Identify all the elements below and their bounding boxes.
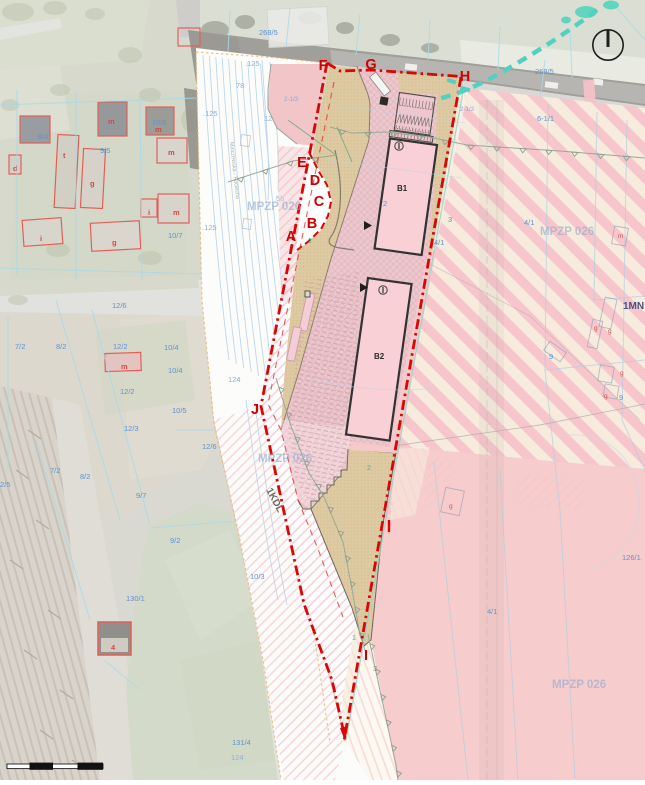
svg-text:B: B xyxy=(307,216,317,232)
svg-text:MPZP 026: MPZP 026 xyxy=(258,453,312,465)
svg-text:1MN: 1MN xyxy=(623,301,644,312)
svg-text:12/6: 12/6 xyxy=(202,442,217,451)
svg-text:.125: .125 xyxy=(202,223,217,232)
svg-text:78: 78 xyxy=(236,81,244,90)
svg-text:m: m xyxy=(618,233,623,240)
svg-text:g: g xyxy=(90,179,95,188)
svg-text:2: 2 xyxy=(308,238,312,245)
svg-text:g: g xyxy=(112,238,117,247)
svg-text:g: g xyxy=(620,370,624,377)
svg-text:2-1/3: 2-1/3 xyxy=(284,96,299,103)
svg-text:7/2: 7/2 xyxy=(50,466,60,475)
svg-text:4/1: 4/1 xyxy=(434,238,444,247)
svg-text:126/1: 126/1 xyxy=(622,553,641,562)
svg-text:10/7: 10/7 xyxy=(168,231,183,240)
svg-text:D: D xyxy=(310,173,320,189)
svg-text:131/4: 131/4 xyxy=(232,738,251,747)
svg-text:8/2: 8/2 xyxy=(80,472,90,481)
svg-text:12/2: 12/2 xyxy=(113,342,128,351)
svg-text:i: i xyxy=(40,234,42,243)
svg-text:9: 9 xyxy=(549,352,553,361)
svg-text:7/2: 7/2 xyxy=(15,342,25,351)
svg-text:10/4: 10/4 xyxy=(164,343,179,352)
svg-text:.125: .125 xyxy=(203,109,218,118)
svg-text:B2: B2 xyxy=(374,352,385,361)
svg-text:1: 1 xyxy=(352,635,356,642)
svg-text:3: 3 xyxy=(373,664,377,673)
svg-text:H: H xyxy=(460,69,470,85)
svg-text:8/4: 8/4 xyxy=(38,132,48,141)
svg-text:4/1: 4/1 xyxy=(487,607,497,616)
svg-text:124: 124 xyxy=(228,375,241,384)
svg-text:E: E xyxy=(297,155,307,171)
svg-text:2/5: 2/5 xyxy=(0,480,10,489)
svg-text:12/3: 12/3 xyxy=(124,424,139,433)
svg-text:i: i xyxy=(148,208,150,217)
svg-text:MPZP 026: MPZP 026 xyxy=(552,679,606,691)
svg-text:g: g xyxy=(604,393,608,400)
svg-text:10/6: 10/6 xyxy=(152,118,167,127)
svg-text:2: 2 xyxy=(383,199,387,208)
svg-text:10/5: 10/5 xyxy=(172,406,187,415)
svg-text:I: I xyxy=(364,648,368,664)
svg-text:268/5: 268/5 xyxy=(535,67,554,76)
svg-text:3: 3 xyxy=(448,215,452,224)
svg-text:C: C xyxy=(314,194,325,210)
svg-text:8/2: 8/2 xyxy=(56,342,66,351)
svg-text:g: g xyxy=(608,328,612,335)
svg-text:MPZP 026: MPZP 026 xyxy=(247,201,301,213)
svg-text:6-1/1: 6-1/1 xyxy=(537,114,554,123)
svg-text:9/2: 9/2 xyxy=(170,536,180,545)
svg-text:9/7: 9/7 xyxy=(136,491,146,500)
svg-text:m: m xyxy=(173,208,180,217)
svg-text:12/2: 12/2 xyxy=(120,387,135,396)
svg-text:9: 9 xyxy=(619,393,623,402)
svg-text:4/1: 4/1 xyxy=(524,218,534,227)
svg-text:MPZP 026: MPZP 026 xyxy=(540,226,594,238)
svg-text:2-1/3: 2-1/3 xyxy=(460,106,475,113)
svg-text:g: g xyxy=(594,325,598,332)
svg-text:124: 124 xyxy=(231,753,244,762)
svg-text:F: F xyxy=(319,58,328,74)
svg-text:g: g xyxy=(449,503,453,510)
svg-text:.125: .125 xyxy=(245,59,260,68)
svg-text:m: m xyxy=(121,362,128,371)
svg-text:A: A xyxy=(286,229,297,245)
svg-text:B1: B1 xyxy=(397,184,408,193)
svg-text:10/4: 10/4 xyxy=(168,366,183,375)
svg-text:m: m xyxy=(108,117,115,126)
svg-text:130/1: 130/1 xyxy=(126,594,145,603)
svg-text:10/3: 10/3 xyxy=(250,572,265,581)
svg-text:J: J xyxy=(251,402,259,418)
svg-text:2: 2 xyxy=(367,465,371,472)
svg-text:9/5: 9/5 xyxy=(100,146,110,155)
svg-text:m: m xyxy=(168,148,175,157)
svg-text:G: G xyxy=(365,57,376,73)
svg-text:268/5: 268/5 xyxy=(259,28,278,37)
svg-text:12/6: 12/6 xyxy=(112,301,127,310)
